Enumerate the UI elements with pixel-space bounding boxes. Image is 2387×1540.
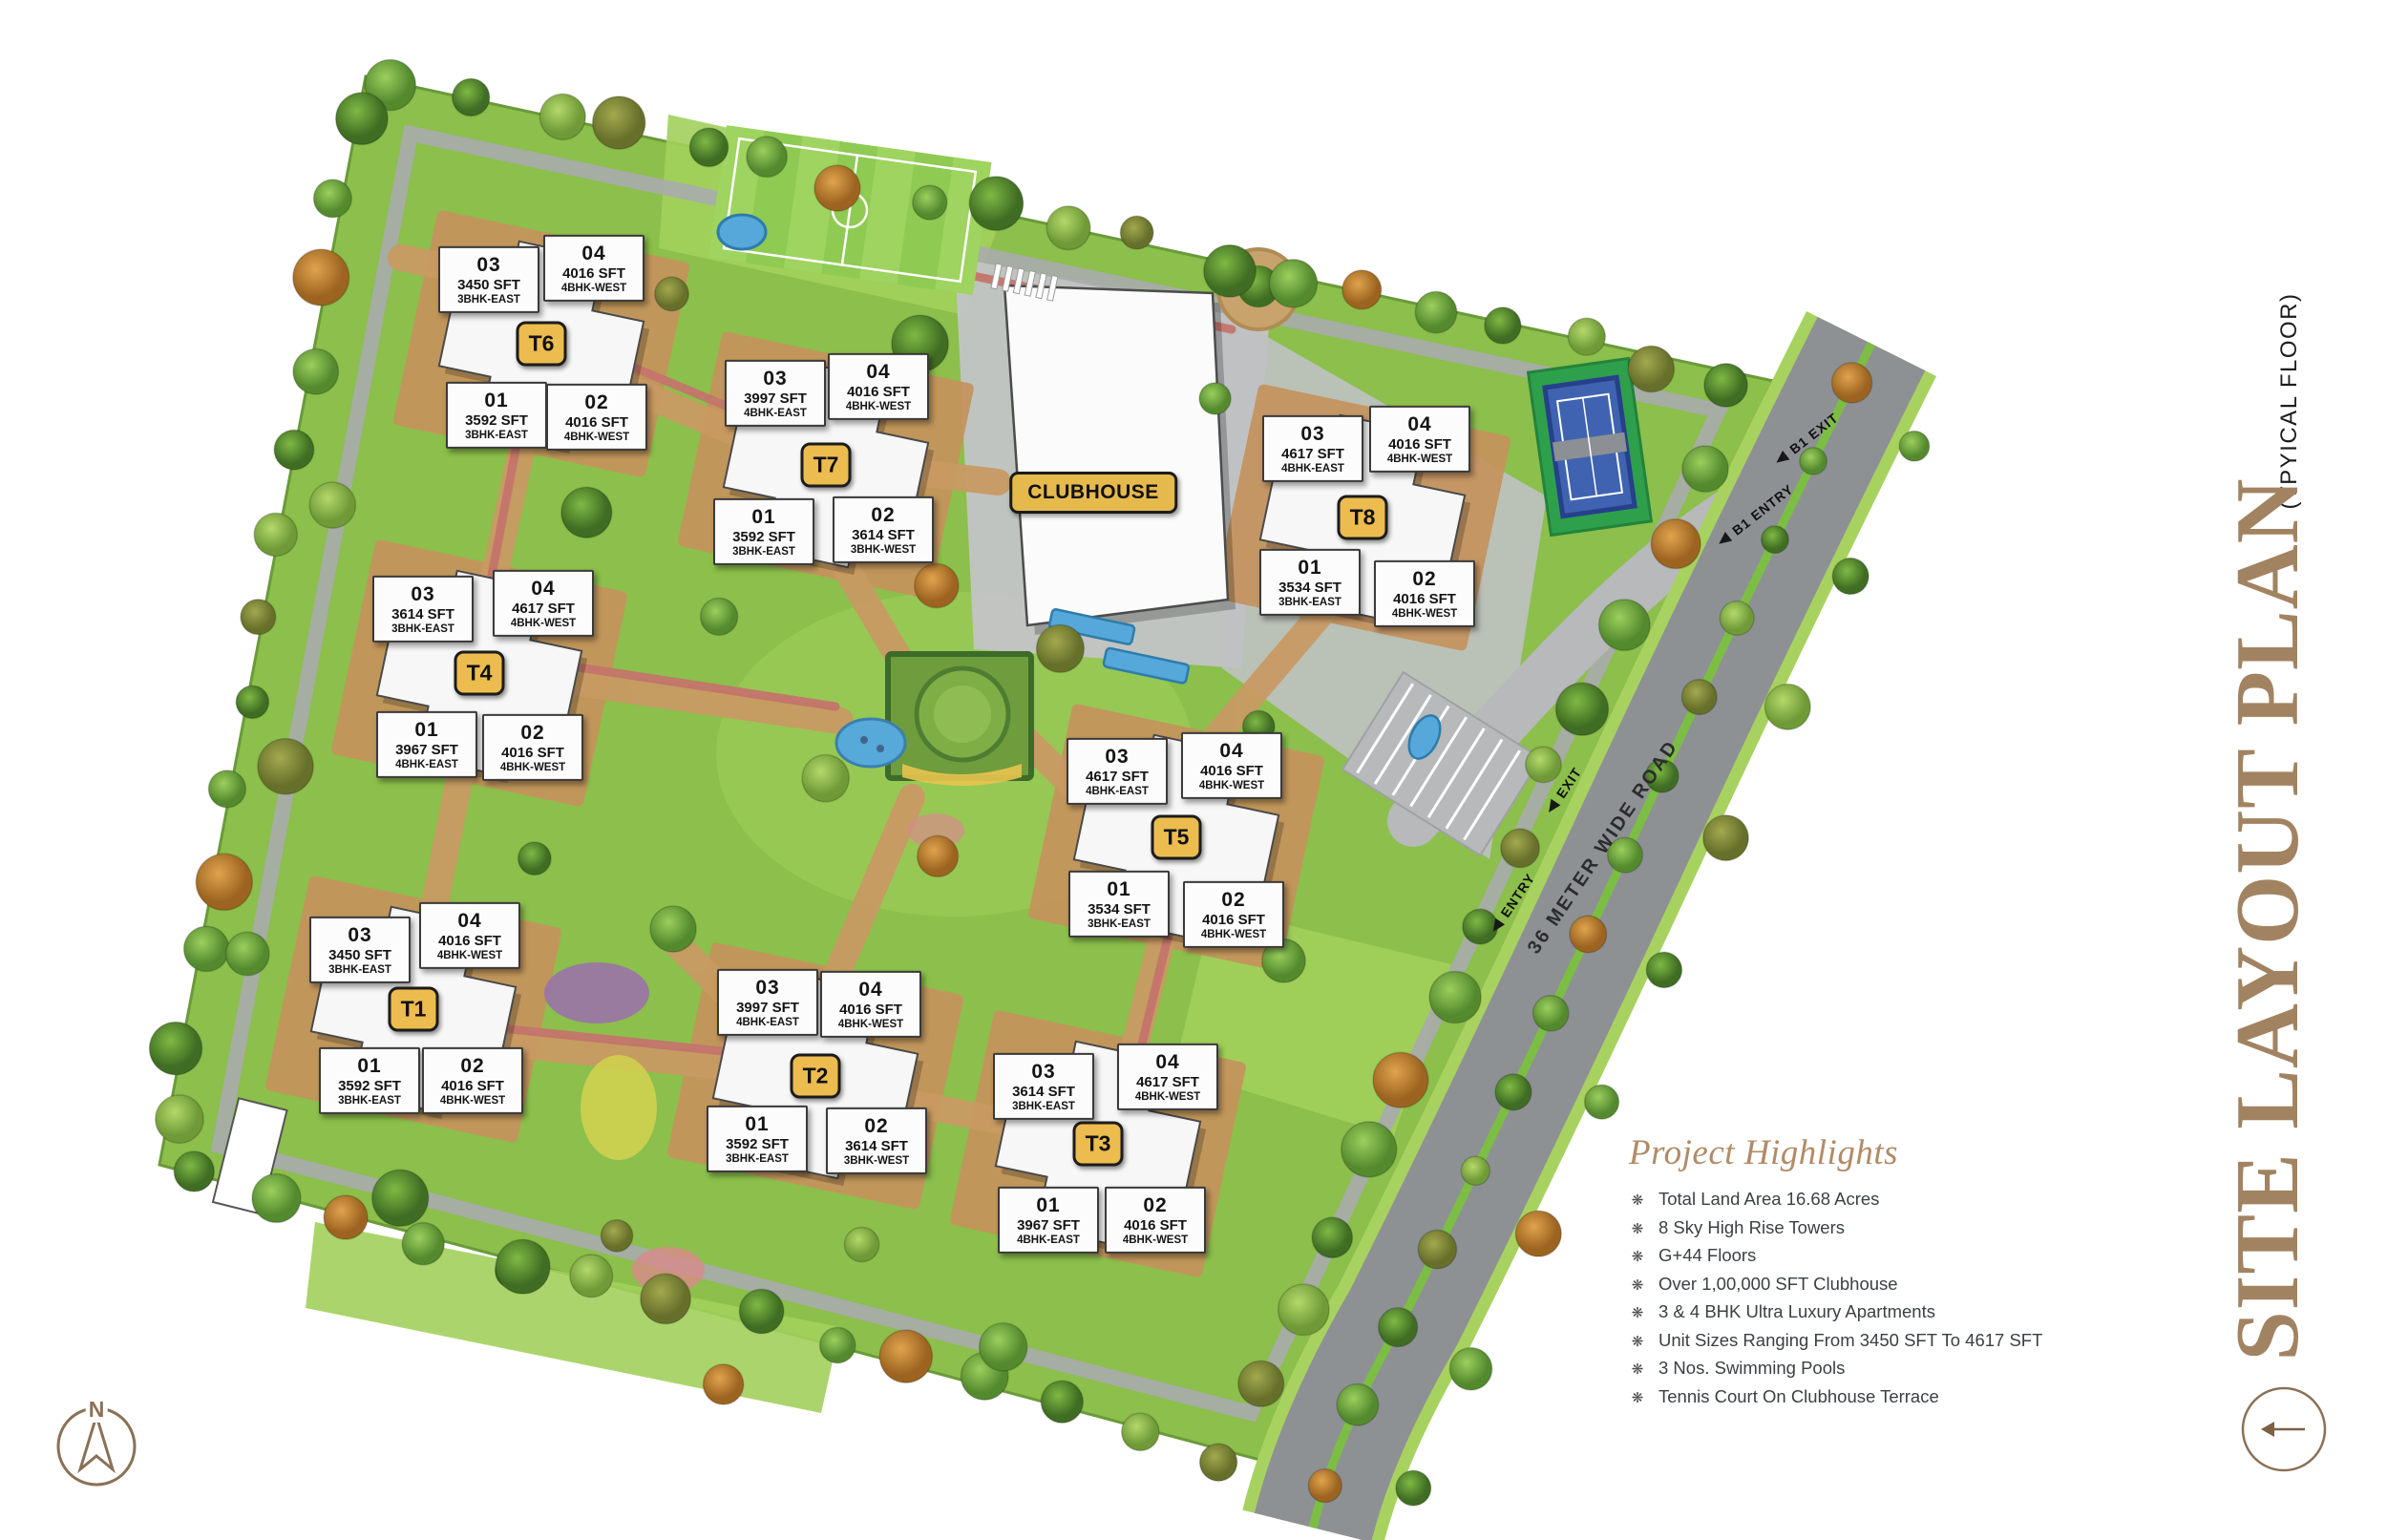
site-layout-page: 36 METER WIDE ROAD EXIT ENTRY B1 EXIT B1… <box>0 0 2387 1540</box>
unit-type: 4BHK-WEST <box>1109 1234 1202 1247</box>
unit-card: 03 4617 SFT 4BHK-EAST <box>1067 738 1168 805</box>
unit-card: 01 3534 SFT 3BHK-EAST <box>1068 871 1170 938</box>
highlight-item: ❋G+44 Floors <box>1629 1245 2202 1274</box>
unit-type: 4BHK-WEST <box>1121 1091 1215 1104</box>
unit-type: 4BHK-WEST <box>423 950 517 962</box>
unit-number: 02 <box>486 722 580 745</box>
tower-badge-t6[interactable]: T6 <box>517 322 567 367</box>
unit-number: 04 <box>832 361 925 384</box>
unit-size: 3967 SFT <box>1002 1217 1095 1234</box>
unit-number: 03 <box>442 254 536 277</box>
unit-number: 03 <box>1070 746 1164 769</box>
unit-type: 4BHK-EAST <box>1070 786 1164 798</box>
unit-size: 3997 SFT <box>729 390 822 407</box>
unit-number: 01 <box>1002 1194 1095 1217</box>
flower-bullet-icon: ❋ <box>1629 1361 1646 1378</box>
highlight-item: ❋Unit Sizes Ranging From 3450 SFT To 461… <box>1629 1330 2202 1359</box>
unit-card: 01 3592 SFT 3BHK-EAST <box>446 382 547 449</box>
unit-size: 4016 SFT <box>547 265 641 282</box>
unit-type: 3BHK-EAST <box>1072 918 1166 931</box>
unit-size: 4016 SFT <box>1187 912 1280 928</box>
unit-size: 3534 SFT <box>1263 580 1357 596</box>
tennis-court <box>1529 358 1652 535</box>
unit-size: 4016 SFT <box>486 745 580 761</box>
unit-card: 04 4617 SFT 4BHK-WEST <box>1117 1044 1218 1110</box>
unit-card: 04 4016 SFT 4BHK-WEST <box>419 902 520 969</box>
unit-size: 4016 SFT <box>1185 763 1278 779</box>
flower-bullet-icon: ❋ <box>1629 1276 1646 1294</box>
unit-type: 4BHK-WEST <box>1185 780 1278 792</box>
clubhouse-label: CLUBHOUSE <box>1009 472 1177 514</box>
unit-card: 02 4016 SFT 4BHK-WEST <box>1374 560 1475 627</box>
unit-type: 4BHK-WEST <box>824 1019 918 1031</box>
unit-card: 04 4016 SFT 4BHK-WEST <box>543 235 644 302</box>
unit-number: 01 <box>1072 878 1166 901</box>
unit-card: 04 4016 SFT 4BHK-WEST <box>828 353 929 420</box>
unit-size: 3592 SFT <box>710 1136 804 1152</box>
flower-bullet-icon: ❋ <box>1629 1389 1646 1406</box>
unit-type: 4BHK-EAST <box>729 408 822 420</box>
page-subtitle: (TPYICAL FLOOR) <box>2276 293 2303 510</box>
unit-card: 02 4016 SFT 4BHK-WEST <box>422 1047 523 1114</box>
unit-size: 3592 SFT <box>717 529 811 545</box>
unit-type: 3BHK-EAST <box>1263 597 1357 609</box>
unit-card: 01 3967 SFT 4BHK-EAST <box>998 1187 1099 1254</box>
unit-type: 4BHK-EAST <box>380 759 474 771</box>
swimming-pool-north <box>718 215 766 249</box>
unit-card: 01 3967 SFT 4BHK-EAST <box>376 711 477 778</box>
highlights-heading: Project Highlights <box>1629 1132 2202 1173</box>
unit-size: 4016 SFT <box>550 414 644 431</box>
unit-type: 3BHK-EAST <box>442 294 536 306</box>
unit-size: 3967 SFT <box>380 742 474 758</box>
tower-badge-t8[interactable]: T8 <box>1338 496 1388 540</box>
unit-number: 01 <box>717 506 811 529</box>
unit-size: 3534 SFT <box>1072 901 1166 918</box>
unit-type: 4BHK-WEST <box>832 401 925 413</box>
unit-size: 3997 SFT <box>721 1000 814 1016</box>
unit-card: 01 3534 SFT 3BHK-EAST <box>1259 549 1361 616</box>
unit-size: 3614 SFT <box>836 527 930 543</box>
unit-size: 4016 SFT <box>1373 436 1467 453</box>
unit-type: 4BHK-WEST <box>486 762 580 774</box>
project-highlights: Project Highlights ❋Total Land Area 16.6… <box>1629 1132 2202 1414</box>
tower-badge-t1[interactable]: T1 <box>389 987 439 1032</box>
tower-badge-t5[interactable]: T5 <box>1151 815 1202 860</box>
unit-type: 3BHK-EAST <box>313 964 407 977</box>
unit-number: 01 <box>323 1055 416 1078</box>
unit-type: 4BHK-WEST <box>547 283 641 295</box>
tower-badge-t7[interactable]: T7 <box>801 443 852 488</box>
unit-number: 03 <box>729 368 822 390</box>
unit-type: 3BHK-EAST <box>323 1095 416 1108</box>
compass-north-label: N <box>86 1397 108 1423</box>
unit-type: 4BHK-EAST <box>1266 463 1360 475</box>
unit-number: 03 <box>1266 423 1360 446</box>
unit-size: 3614 SFT <box>376 606 470 622</box>
flower-bullet-icon: ❋ <box>1629 1220 1646 1237</box>
unit-card: 03 3614 SFT 3BHK-EAST <box>372 576 474 643</box>
highlights-list: ❋Total Land Area 16.68 Acres ❋8 Sky High… <box>1629 1189 2202 1414</box>
unit-card: 03 3614 SFT 3BHK-EAST <box>993 1053 1094 1120</box>
unit-card: 04 4016 SFT 4BHK-WEST <box>1369 406 1470 473</box>
highlight-item: ❋3 & 4 BHK Ultra Luxury Apartments <box>1629 1301 2202 1330</box>
unit-number: 02 <box>1378 568 1471 591</box>
unit-type: 4BHK-WEST <box>426 1095 519 1108</box>
unit-number: 02 <box>426 1055 519 1078</box>
unit-number: 01 <box>450 390 543 412</box>
unit-card: 03 3997 SFT 4BHK-EAST <box>725 360 826 427</box>
unit-number: 04 <box>423 910 517 933</box>
unit-size: 4617 SFT <box>1121 1074 1215 1090</box>
unit-number: 03 <box>721 977 814 1000</box>
unit-card: 03 3450 SFT 3BHK-EAST <box>438 246 539 313</box>
unit-size: 3614 SFT <box>997 1084 1090 1100</box>
flower-bullet-icon: ❋ <box>1629 1248 1646 1265</box>
unit-number: 04 <box>496 578 590 601</box>
clubhouse-building <box>991 264 1236 635</box>
unit-card: 03 3450 SFT 3BHK-EAST <box>309 917 411 983</box>
unit-number: 04 <box>1373 413 1467 436</box>
unit-type: 4BHK-EAST <box>721 1017 814 1029</box>
unit-number: 02 <box>836 504 930 527</box>
unit-type: 3BHK-EAST <box>710 1153 804 1166</box>
highlight-item: ❋8 Sky High Rise Towers <box>1629 1217 2202 1246</box>
unit-size: 3450 SFT <box>313 947 407 963</box>
highlight-item: ❋Over 1,00,000 SFT Clubhouse <box>1629 1274 2202 1302</box>
unit-size: 4016 SFT <box>423 933 517 949</box>
unit-card: 03 3997 SFT 4BHK-EAST <box>717 969 818 1036</box>
unit-card: 01 3592 SFT 3BHK-EAST <box>713 498 814 565</box>
unit-size: 4016 SFT <box>824 1002 918 1018</box>
unit-card: 04 4617 SFT 4BHK-WEST <box>493 570 594 637</box>
unit-number: 01 <box>710 1113 804 1136</box>
unit-card: 03 4617 SFT 4BHK-EAST <box>1262 415 1363 482</box>
unit-type: 3BHK-EAST <box>997 1101 1090 1113</box>
unit-number: 03 <box>376 583 470 606</box>
highlight-item: ❋Tennis Court On Clubhouse Terrace <box>1629 1386 2202 1415</box>
unit-size: 4016 SFT <box>832 384 925 400</box>
unit-type: 3BHK-WEST <box>830 1155 923 1168</box>
unit-type: 3BHK-EAST <box>717 546 811 559</box>
unit-number: 01 <box>1263 557 1357 580</box>
unit-size: 3592 SFT <box>450 412 543 429</box>
flower-bullet-icon: ❋ <box>1629 1333 1646 1350</box>
unit-number: 02 <box>550 391 644 414</box>
unit-size: 4617 SFT <box>496 601 590 617</box>
unit-type: 4BHK-WEST <box>1187 929 1280 941</box>
tower-badge-t4[interactable]: T4 <box>454 651 505 696</box>
unit-size: 4016 SFT <box>426 1078 519 1094</box>
unit-card: 02 4016 SFT 4BHK-WEST <box>1183 881 1284 948</box>
unit-size: 3450 SFT <box>442 277 536 293</box>
unit-number: 03 <box>313 924 407 947</box>
back-button[interactable] <box>2240 1385 2328 1473</box>
unit-card: 01 3592 SFT 3BHK-EAST <box>707 1106 808 1172</box>
unit-type: 4BHK-WEST <box>1373 454 1467 466</box>
unit-type: 4BHK-WEST <box>496 618 590 630</box>
tower-badge-t2[interactable]: T2 <box>791 1054 841 1099</box>
unit-type: 3BHK-EAST <box>376 623 470 636</box>
unit-size: 4617 SFT <box>1070 769 1164 785</box>
unit-number: 02 <box>1109 1194 1202 1217</box>
unit-card: 02 4016 SFT 4BHK-WEST <box>1105 1187 1206 1254</box>
unit-card: 04 4016 SFT 4BHK-WEST <box>820 971 921 1038</box>
unit-number: 04 <box>547 243 641 265</box>
unit-card: 02 4016 SFT 4BHK-WEST <box>546 384 647 451</box>
unit-card: 01 3592 SFT 3BHK-EAST <box>319 1047 420 1114</box>
page-title: SITE LAYOUT PLAN <box>2216 478 2319 1361</box>
unit-size: 4016 SFT <box>1109 1217 1202 1234</box>
unit-card: 02 3614 SFT 3BHK-WEST <box>826 1108 927 1174</box>
unit-card: 02 3614 SFT 3BHK-WEST <box>833 496 934 563</box>
unit-number: 02 <box>830 1115 923 1138</box>
unit-type: 3BHK-EAST <box>450 430 543 442</box>
unit-size: 4617 SFT <box>1266 446 1360 462</box>
unit-type: 4BHK-WEST <box>1378 608 1471 621</box>
unit-size: 3592 SFT <box>323 1078 416 1094</box>
flower-bullet-icon: ❋ <box>1629 1304 1646 1321</box>
unit-number: 04 <box>1121 1051 1215 1074</box>
unit-number: 02 <box>1187 889 1280 912</box>
north-compass: N <box>53 1399 140 1490</box>
flower-bullet-icon: ❋ <box>1629 1192 1646 1209</box>
highlight-item: ❋3 Nos. Swimming Pools <box>1629 1358 2202 1386</box>
unit-number: 04 <box>824 979 918 1002</box>
unit-type: 4BHK-WEST <box>550 432 644 444</box>
unit-type: 4BHK-EAST <box>1002 1234 1095 1247</box>
tower-badge-t3[interactable]: T3 <box>1073 1122 1124 1167</box>
unit-number: 04 <box>1185 740 1278 763</box>
unit-type: 3BHK-WEST <box>836 544 930 557</box>
unit-number: 03 <box>997 1061 1090 1084</box>
unit-size: 4016 SFT <box>1378 591 1471 607</box>
unit-number: 01 <box>380 719 474 742</box>
back-arrow-icon <box>2240 1385 2328 1473</box>
unit-card: 02 4016 SFT 4BHK-WEST <box>482 714 583 781</box>
highlight-item: ❋Total Land Area 16.68 Acres <box>1629 1189 2202 1217</box>
unit-size: 3614 SFT <box>830 1138 923 1154</box>
unit-card: 04 4016 SFT 4BHK-WEST <box>1181 732 1282 799</box>
